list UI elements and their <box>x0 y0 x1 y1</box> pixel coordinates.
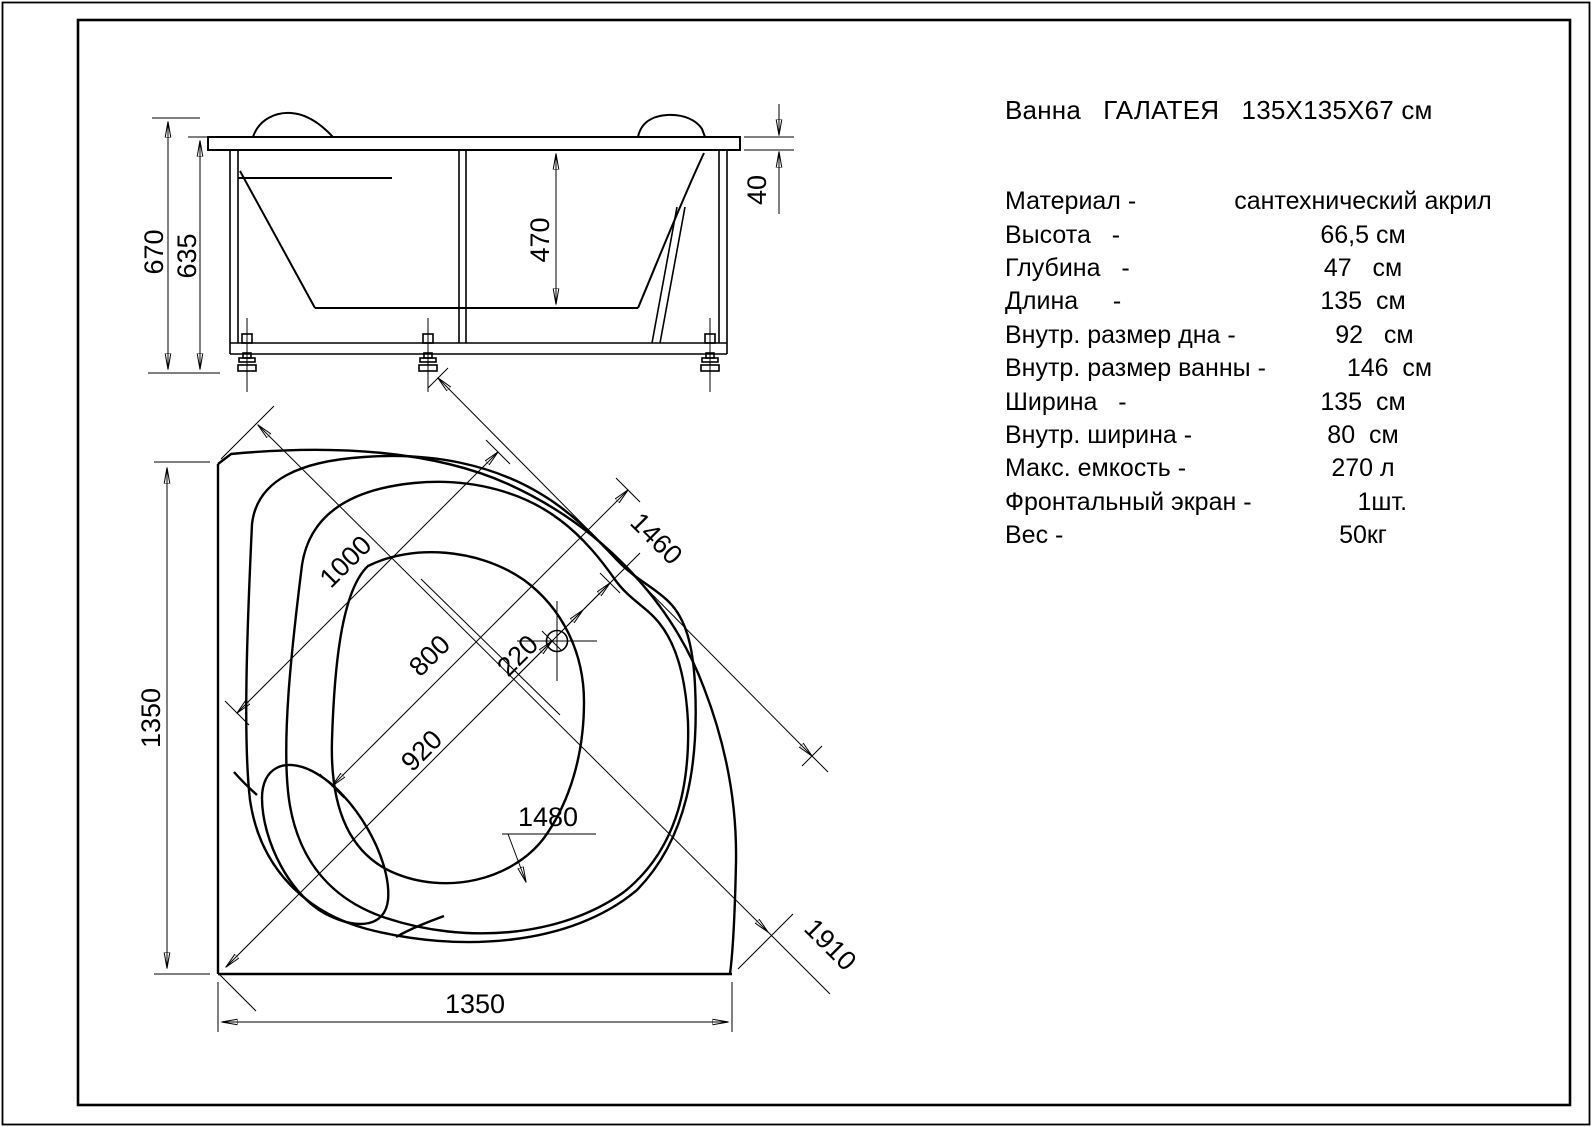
spec-value: 1шт. <box>1252 488 1513 517</box>
dim-label-1480: 1480 <box>518 802 578 832</box>
dim-arrow-220b <box>584 583 610 609</box>
dim-label-470: 470 <box>525 217 555 262</box>
plan-view: 1350 1350 1000 800 920 <box>136 368 862 1032</box>
tub-profile-left-bottom <box>240 171 638 308</box>
dim-arrow-220a <box>557 610 583 636</box>
spec-value: 47 см <box>1213 254 1513 283</box>
spec-value: 146 см <box>1266 354 1513 383</box>
spec-row-width: Ширина - 135 см <box>1005 385 1513 418</box>
dim-label-40: 40 <box>742 175 772 205</box>
headrest-right <box>638 115 705 137</box>
spec-label: Фронтальный экран - <box>1005 488 1252 517</box>
foot-left <box>238 318 256 392</box>
dim-line-1000 <box>237 452 498 713</box>
spec-row-front-panel: Фронтальный экран - 1шт. <box>1005 486 1513 519</box>
detail-stroke-bottom <box>396 916 444 937</box>
spec-label: Внутр. размер ванны - <box>1005 354 1266 383</box>
side-rim <box>208 137 740 150</box>
dim-label-670: 670 <box>139 229 169 274</box>
spec-row-length: Длина - 135 см <box>1005 285 1513 318</box>
spec-value: 80 см <box>1213 421 1513 450</box>
spec-row-inner-size: Внутр. размер ванны - 146 см <box>1005 352 1513 385</box>
dim-label-800: 800 <box>403 629 456 682</box>
ext-lines-40 <box>744 137 794 150</box>
detail-stroke-left <box>234 772 257 795</box>
spec-row-material: Материал - сантехнический акрил <box>1005 185 1513 218</box>
seat-contour <box>262 765 388 924</box>
bottom-rail <box>230 343 727 354</box>
dim-line-800 <box>332 490 628 786</box>
spec-label: Вес - <box>1005 521 1213 550</box>
spec-value: 66,5 см <box>1213 221 1513 250</box>
spec-value: 135 см <box>1213 388 1513 417</box>
spec-label: Внутр. размер дна - <box>1005 321 1236 350</box>
spec-row-height: Высота - 66,5 см <box>1005 218 1513 251</box>
headrest-left <box>253 113 333 137</box>
dim-label-635: 635 <box>172 233 202 278</box>
spec-row-capacity: Макс. емкость - 270 л <box>1005 452 1513 485</box>
spec-label: Макс. емкость - <box>1005 454 1213 483</box>
technical-drawing: 670 635 470 40 <box>0 0 1592 1127</box>
spec-row-inner-width: Внутр. ширина - 80 см <box>1005 419 1513 452</box>
dim-label-920: 920 <box>395 724 448 777</box>
spec-label: Материал - <box>1005 187 1213 216</box>
dim-label-1000: 1000 <box>314 530 378 594</box>
dim-label-1910: 1910 <box>799 913 863 977</box>
spec-row-inner-bottom: Внутр. размер дна - 92 см <box>1005 319 1513 352</box>
spec-value: 92 см <box>1236 321 1513 350</box>
side-view: 670 635 470 40 <box>139 104 794 392</box>
page-title: Ванна ГАЛАТЕЯ 135X135X67 см <box>1005 95 1513 126</box>
spec-row-depth: Глубина - 47 см <box>1005 252 1513 285</box>
overflow-hose <box>652 207 685 343</box>
spec-value: 50кг <box>1213 521 1513 550</box>
spec-value: 135 см <box>1213 287 1513 316</box>
foot-right <box>701 318 719 392</box>
spec-label: Внутр. ширина - <box>1005 421 1213 450</box>
spec-label: Ширина - <box>1005 388 1213 417</box>
dim-label-1460: 1460 <box>625 507 689 571</box>
dim-label-1350-vertical: 1350 <box>136 688 166 748</box>
dim-label-1350-horizontal: 1350 <box>445 989 505 1019</box>
spec-value: 270 л <box>1213 454 1513 483</box>
spec-label: Длина - <box>1005 287 1213 316</box>
drawing-sheet: 670 635 470 40 <box>0 0 1592 1127</box>
spec-label: Глубина - <box>1005 254 1213 283</box>
spec-label: Высота - <box>1005 221 1213 250</box>
spec-row-weight: Вес - 50кг <box>1005 519 1513 552</box>
spec-table: Материал - сантехнический акрил Высота -… <box>1005 185 1513 552</box>
spec-value: сантехнический акрил <box>1213 187 1513 216</box>
foot-middle <box>419 318 437 392</box>
spec-panel: Ванна ГАЛАТЕЯ 135X135X67 см <box>1005 95 1513 126</box>
axis-corner-overrun <box>219 974 256 1011</box>
